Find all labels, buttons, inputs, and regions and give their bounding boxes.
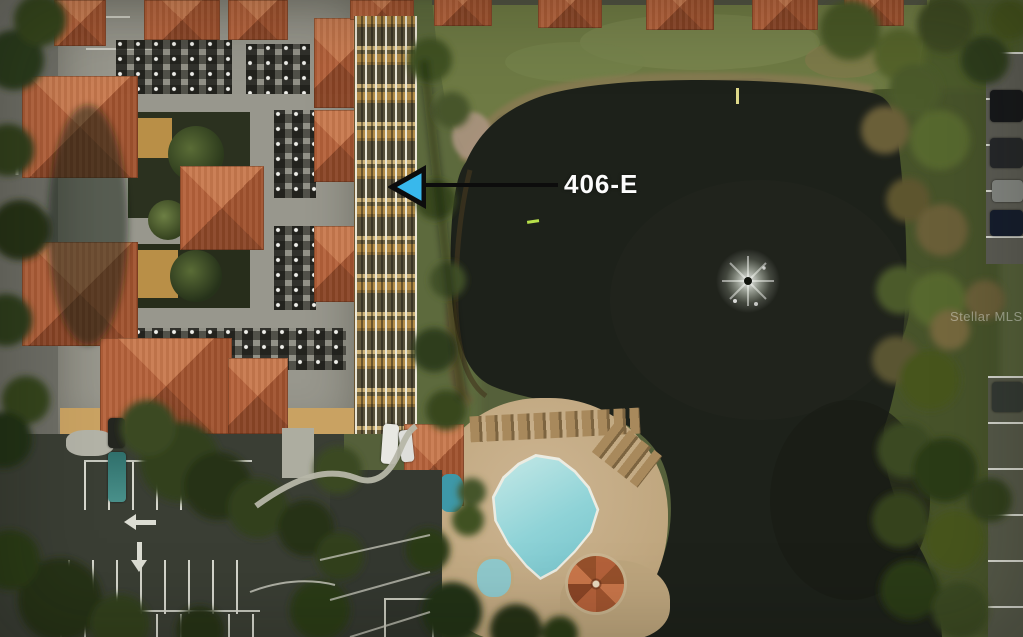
fountain-splash — [754, 302, 758, 306]
pavement-arrow-down — [131, 542, 148, 573]
rooftop-ac-cluster — [274, 226, 316, 310]
parked-car — [990, 210, 1023, 236]
shore-stake — [736, 88, 739, 104]
building-roof — [22, 76, 138, 178]
sidewalk — [66, 430, 114, 456]
parked-car — [992, 180, 1023, 202]
parked-car — [990, 90, 1023, 122]
dirt-patch — [805, 42, 885, 78]
parking-stalls — [68, 560, 258, 614]
building-roof — [144, 0, 220, 40]
parked-car-teal — [108, 452, 126, 502]
fountain-splash — [762, 266, 765, 269]
arrowhead-triangle — [392, 169, 424, 205]
building-roof — [538, 0, 602, 28]
kiddie-pool — [474, 556, 514, 600]
balcony-facade — [354, 16, 417, 434]
arrow-shaft — [137, 542, 142, 561]
lake-shadow — [770, 400, 930, 600]
parked-car — [990, 138, 1023, 168]
parking-stalls — [60, 614, 256, 637]
aerial-photo-condo-lake: 406-E Stellar MLS — [0, 0, 1023, 637]
rooftop-ac-cluster — [246, 44, 310, 94]
courtyard-structure — [132, 118, 172, 158]
parked-car-dark — [108, 418, 125, 448]
mls-watermark: Stellar MLS — [950, 309, 1023, 324]
white-trailer — [381, 423, 400, 464]
lake-fountain — [716, 249, 780, 313]
building-roof — [54, 0, 106, 46]
arrow-head — [131, 560, 147, 572]
street-left — [0, 0, 58, 452]
parked-car — [992, 382, 1023, 412]
pavement-arrow-left — [124, 514, 158, 531]
entry-walk — [282, 428, 314, 478]
arrow-shaft — [135, 520, 156, 525]
courtyard-tree — [170, 250, 222, 302]
rooftop-ac-cluster — [274, 110, 316, 198]
arrow-head — [124, 514, 136, 530]
building-roof — [180, 166, 264, 250]
pavement-arrow-shaft — [16, 157, 19, 175]
annotation-arrow-line — [420, 183, 558, 187]
building-roof — [434, 0, 492, 26]
gazebo-roof — [568, 556, 624, 612]
utility-pad — [384, 598, 434, 637]
building-roof — [22, 242, 138, 346]
fountain-splash — [733, 299, 737, 303]
unit-label: 406-E — [564, 171, 638, 197]
building-roof — [228, 0, 288, 40]
building-roof — [646, 0, 714, 30]
annotation-arrowhead-icon — [388, 165, 426, 209]
lane-line — [54, 610, 260, 612]
fountain-center — [744, 277, 752, 285]
building-roof — [752, 0, 818, 30]
building-roof — [844, 0, 904, 26]
parking-strip — [988, 376, 1023, 637]
building-roof — [228, 358, 288, 434]
